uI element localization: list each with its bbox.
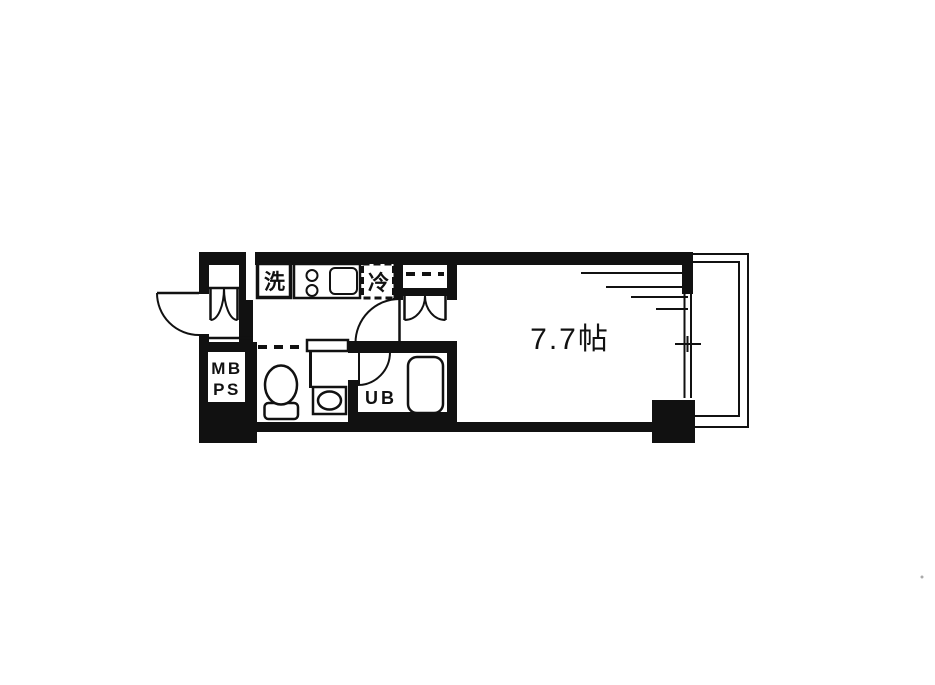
wall-left-upper <box>199 252 209 294</box>
wall-ub-bottom <box>348 412 457 422</box>
shoe-door-arc-right <box>224 288 238 320</box>
pillar-bottom-right <box>652 400 695 443</box>
washroom-door-box <box>307 340 348 351</box>
room-door-swing-arc <box>356 299 400 343</box>
wall-toilet-basin-divider <box>309 352 312 388</box>
wall-bottom <box>253 422 652 432</box>
entry-door-swing-arc <box>157 293 199 335</box>
closet-door-arc-left <box>405 296 426 320</box>
pipe-space-label: PS <box>213 380 241 399</box>
shoe-door-arc-left <box>211 288 225 320</box>
wall-top-vent-slot <box>246 252 255 265</box>
wall-entry-divider-lower <box>239 300 253 343</box>
closet-front-bar <box>403 288 447 296</box>
room-size-label: 7.7帖 <box>530 323 610 356</box>
unit-bath-label: UB <box>365 388 397 408</box>
toilet-bowl <box>265 366 297 405</box>
wall-sanitary-band <box>348 341 457 353</box>
wall-closet-right <box>447 264 457 300</box>
bathtub <box>408 357 443 413</box>
ub-door-swing-arc <box>358 352 390 385</box>
washer-label: 洗 <box>264 271 285 294</box>
floor-plan: 洗 冷 UB MB PS 7.7帖 <box>0 0 935 680</box>
fridge-label: 冷 <box>368 271 389 295</box>
closet-door-arc-right <box>425 296 446 320</box>
corner-hatch-lines <box>581 273 688 309</box>
meter-box-label: MB <box>211 359 242 378</box>
stray-dot <box>921 576 924 579</box>
floor-plan-page: 洗 冷 UB MB PS 7.7帖 <box>0 0 935 680</box>
wall-right-upper <box>682 252 693 294</box>
wall-entry-divider-upper <box>239 264 246 302</box>
balcony-outline-inner <box>693 262 739 416</box>
kitchen-counter <box>294 264 360 298</box>
